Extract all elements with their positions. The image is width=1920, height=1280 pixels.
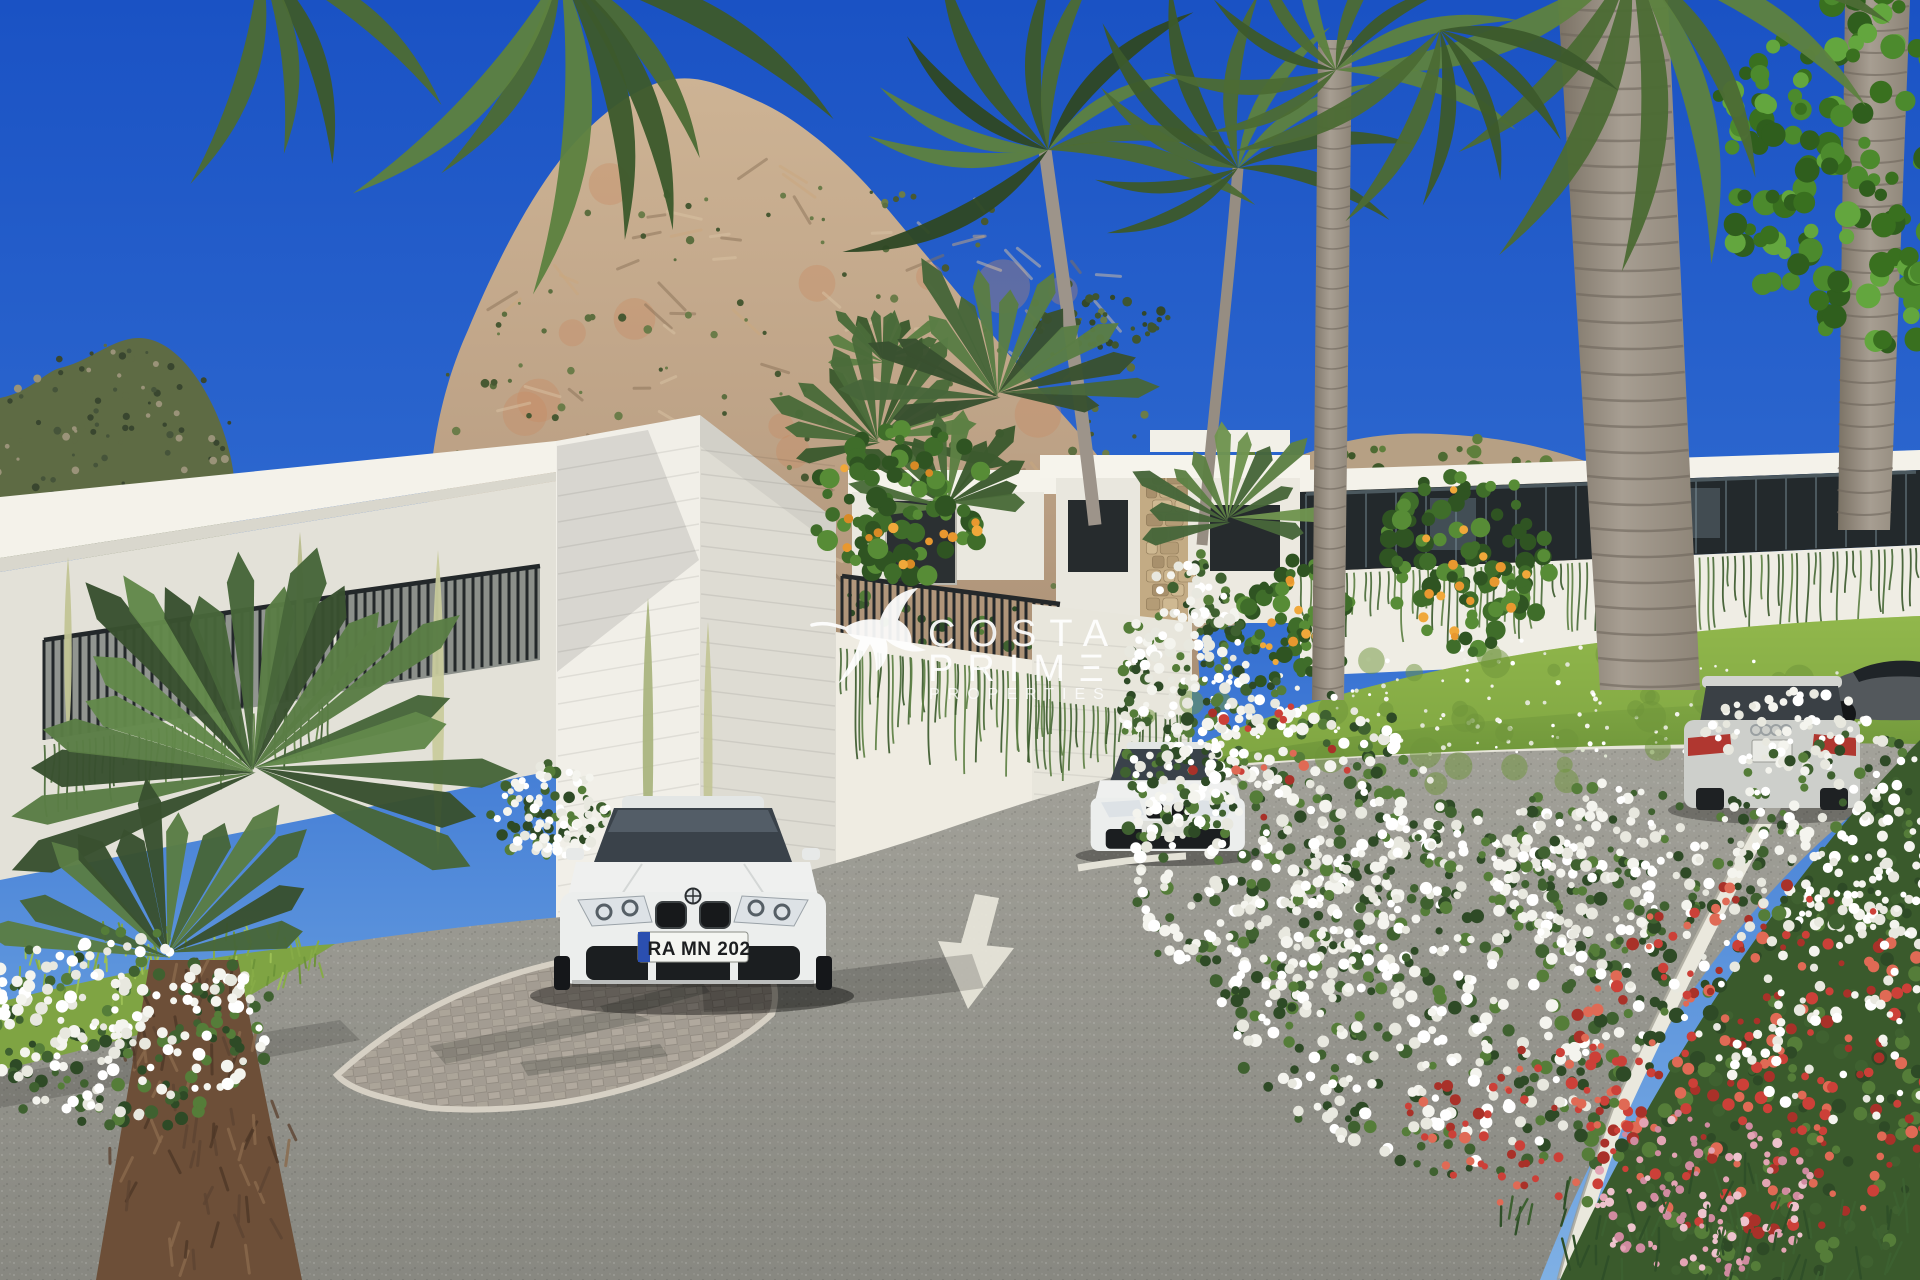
headlight-left — [578, 896, 652, 926]
kidney-grille-left — [656, 902, 686, 928]
license-plate-text: RA MN 202 — [647, 939, 750, 960]
headlight-right — [734, 896, 808, 926]
kidney-grille-right — [700, 902, 730, 928]
watermark-line3: PROPERTIES — [929, 686, 1112, 703]
render-scene: RA MN 202 COSTA PRIMΞ PROPERTIES — [0, 0, 1920, 1280]
scene-canvas: RA MN 202 COSTA PRIMΞ PROPERTIES — [0, 0, 1920, 1280]
license-plate: RA MN 202 — [638, 932, 751, 962]
watermark-line2: PRIMΞ — [928, 648, 1118, 690]
